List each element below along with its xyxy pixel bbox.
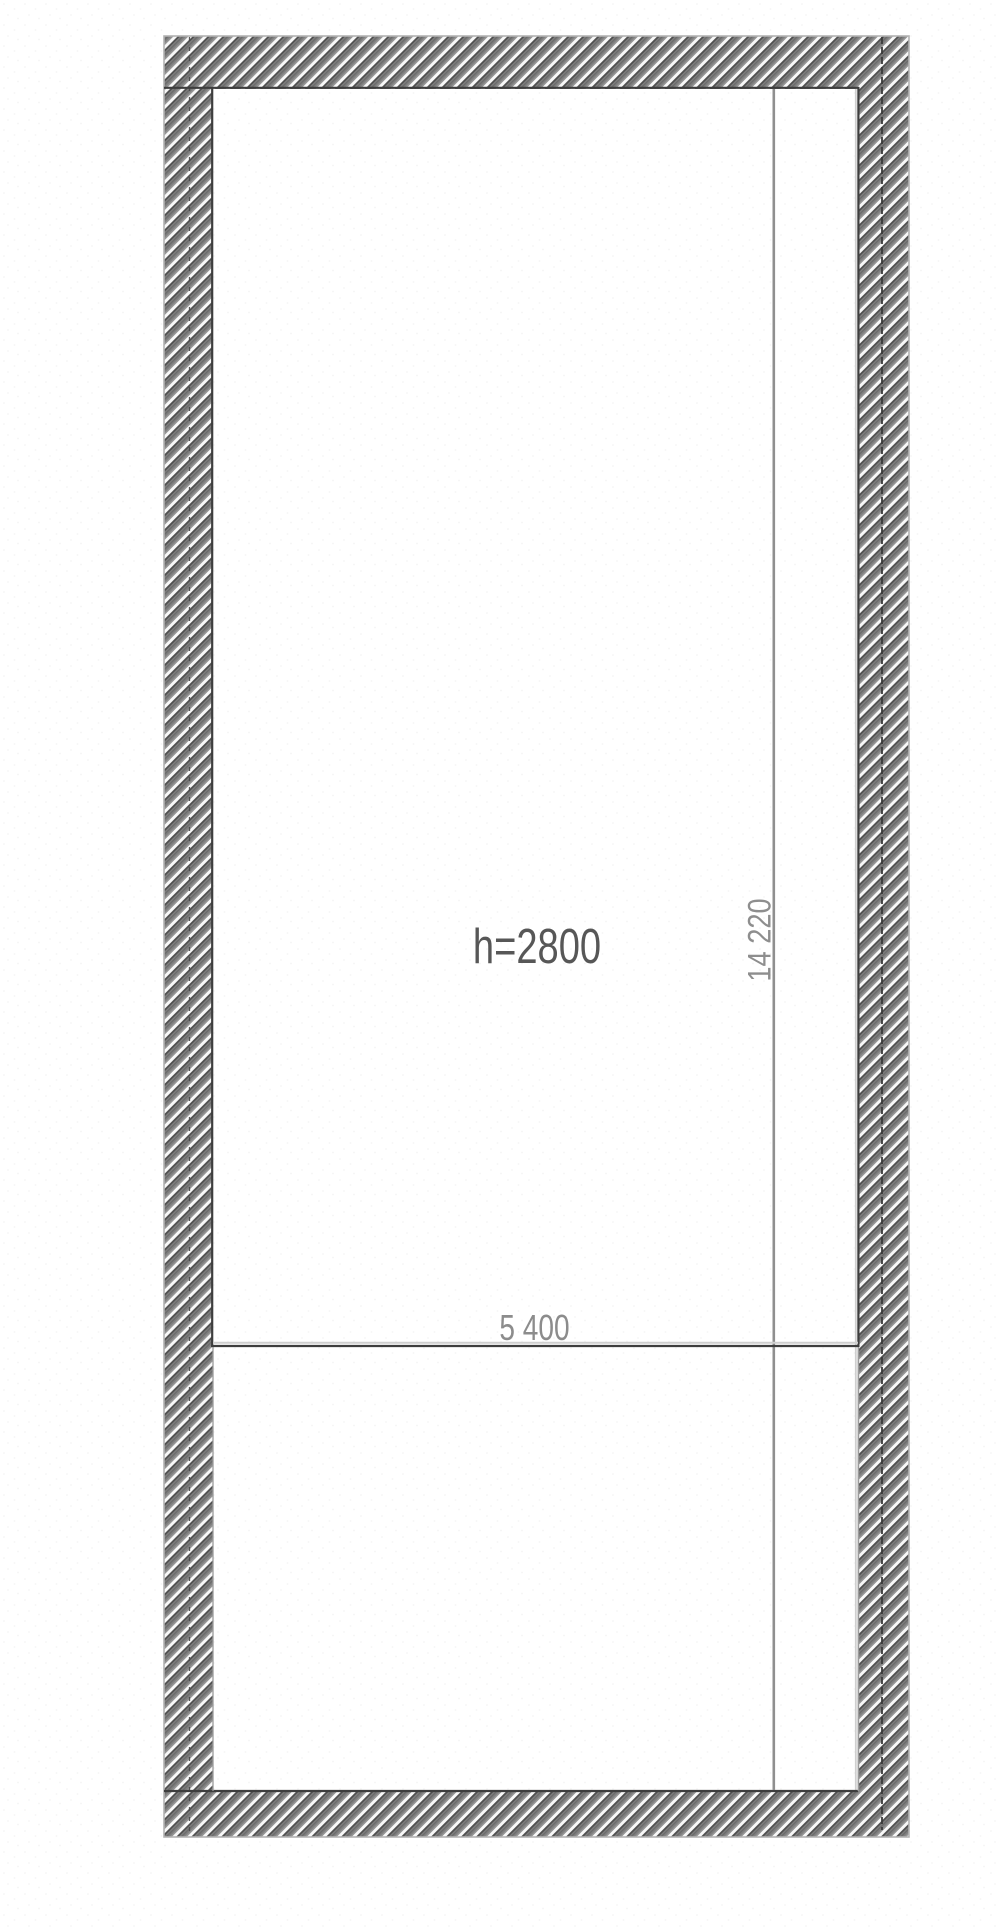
svg-text:5 400: 5 400 bbox=[499, 1308, 569, 1348]
svg-text:h=2800: h=2800 bbox=[473, 919, 601, 974]
svg-text:14 220: 14 220 bbox=[742, 898, 778, 981]
